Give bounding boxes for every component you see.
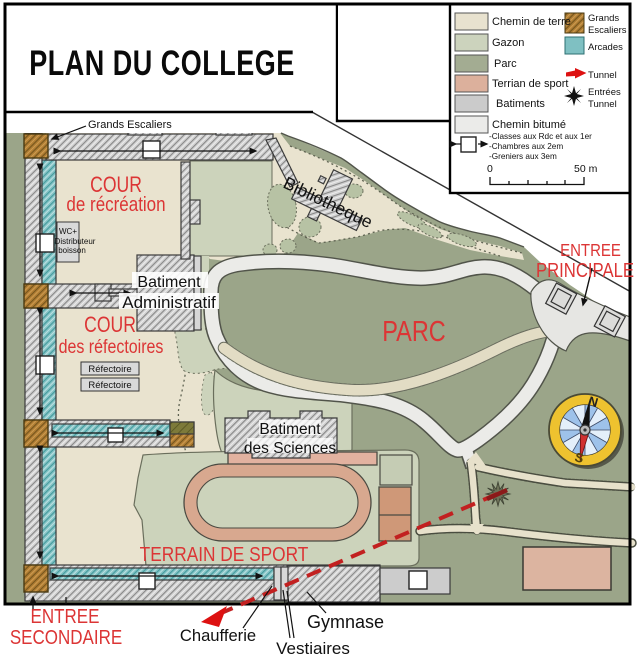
svg-text:Réfectoire: Réfectoire (88, 364, 131, 375)
svg-text:ENTREE: ENTREE (560, 240, 621, 261)
svg-text:Grands: Grands (588, 13, 619, 24)
svg-text:Escaliers: Escaliers (588, 25, 627, 36)
svg-text:Parc: Parc (494, 58, 517, 70)
svg-text:Terrian de sport: Terrian de sport (492, 78, 568, 90)
svg-text:Chemin bitumé: Chemin bitumé (492, 119, 566, 131)
svg-text:PRINCIPALE: PRINCIPALE (536, 259, 634, 282)
svg-text:Arcades: Arcades (588, 42, 623, 53)
svg-text:PLAN DU COLLEGE: PLAN DU COLLEGE (29, 42, 294, 83)
svg-text:50 m: 50 m (574, 163, 598, 175)
svg-text:Distributeur: Distributeur (55, 237, 96, 246)
svg-text:COUR: COUR (84, 313, 136, 337)
svg-text:TERRAIN DE SPORT: TERRAIN DE SPORT (140, 544, 309, 567)
svg-text:Gymnase: Gymnase (307, 612, 384, 632)
svg-text:Réfectoire: Réfectoire (88, 380, 131, 391)
svg-text:-Classes aux Rdc et aux 1er: -Classes aux Rdc et aux 1er (489, 132, 592, 141)
svg-text:Chemin de terre: Chemin de terre (492, 16, 571, 28)
svg-text:-Chambres aux 2em: -Chambres aux 2em (489, 142, 563, 151)
svg-text:Batiment: Batiment (137, 274, 201, 291)
svg-text:de récréation: de récréation (66, 193, 165, 216)
svg-text:Chaufferie: Chaufferie (180, 626, 256, 645)
svg-text:-Greniers aux 3em: -Greniers aux 3em (489, 152, 557, 161)
svg-text:Vestiaires: Vestiaires (276, 639, 350, 658)
svg-text:Grands Escaliers: Grands Escaliers (88, 119, 172, 131)
svg-text:0: 0 (487, 163, 493, 175)
svg-text:WC+: WC+ (59, 227, 77, 236)
svg-text:des réfectoires: des réfectoires (59, 336, 164, 358)
svg-text:PARC: PARC (382, 315, 446, 348)
svg-text:des Sciences: des Sciences (244, 440, 336, 457)
svg-text:ENTREE: ENTREE (31, 605, 100, 628)
svg-text:SECONDAIRE: SECONDAIRE (10, 626, 122, 649)
svg-text:boisson: boisson (58, 246, 86, 255)
svg-text:Entrées: Entrées (588, 87, 621, 98)
svg-text:Tunnel: Tunnel (588, 70, 617, 81)
svg-text:Gazon: Gazon (492, 37, 524, 49)
svg-text:Batiment: Batiment (259, 421, 321, 438)
svg-text:Administratif: Administratif (122, 293, 216, 312)
svg-text:Tunnel: Tunnel (588, 99, 617, 110)
svg-text:Batiments: Batiments (496, 98, 545, 110)
